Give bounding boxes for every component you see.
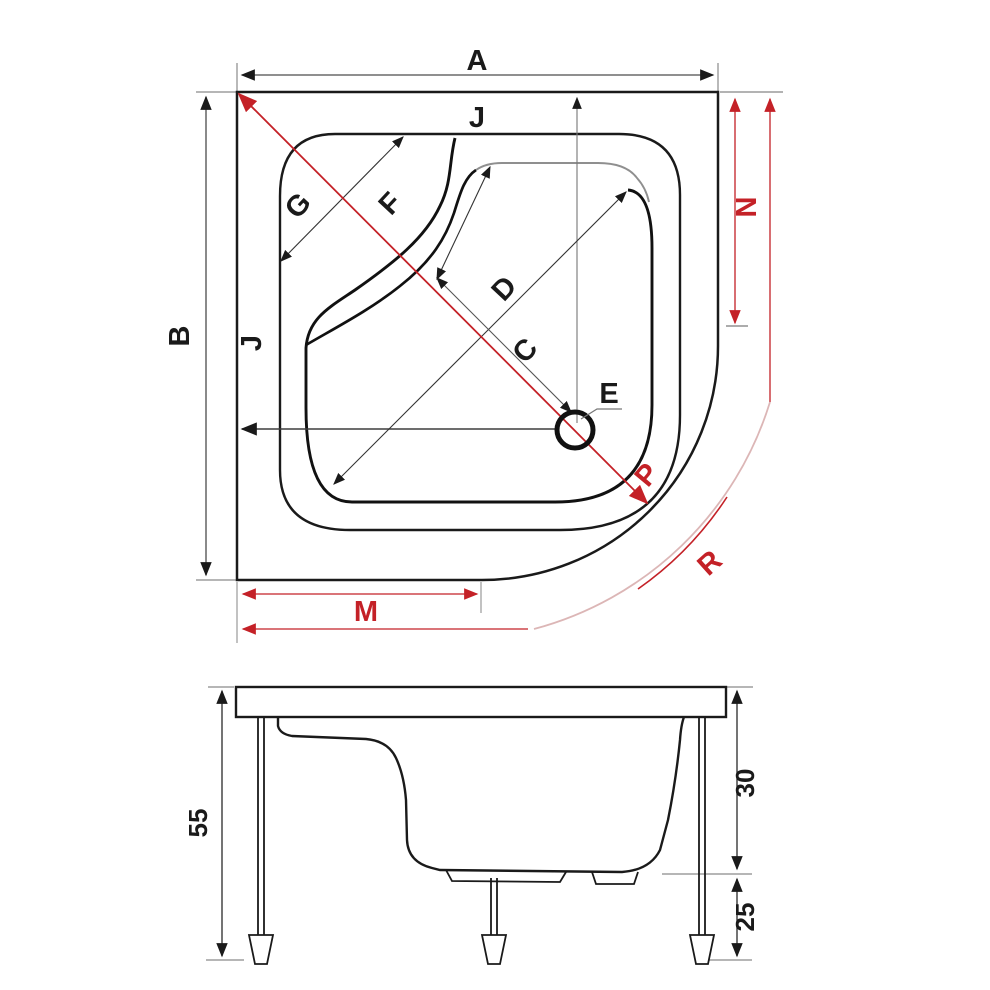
rim-slab [236, 687, 726, 717]
label-e: E [599, 378, 618, 410]
plan-view: A J B J G F D C E N P M R [164, 45, 783, 643]
label-b: B [164, 326, 196, 347]
label-n: N [731, 197, 763, 218]
diagram-canvas: A J B J G F D C E N P M R [0, 0, 990, 990]
label-a: A [467, 45, 488, 77]
label-c: C [507, 332, 545, 369]
label-j-top: J [469, 102, 485, 134]
support-bump [592, 872, 638, 884]
radius-arc-faint [534, 402, 770, 629]
label-25: 25 [730, 903, 760, 932]
label-j-left: J [236, 335, 268, 351]
label-30: 30 [730, 769, 760, 798]
label-55: 55 [183, 809, 213, 838]
tub-profile [278, 717, 684, 872]
dimension-line-d [334, 192, 626, 484]
shower-tray-technical-drawing: A J B J G F D C E N P M R [0, 0, 990, 990]
middle-foot [482, 935, 506, 964]
label-f: F [373, 186, 408, 221]
label-d: D [486, 270, 524, 307]
label-m: M [354, 596, 378, 628]
left-foot [249, 935, 273, 964]
seat-top-edge [476, 163, 649, 202]
label-r: R [691, 544, 728, 582]
inner-rim-outline [280, 134, 680, 530]
side-elevation: 55 30 25 [183, 687, 760, 964]
label-g: G [279, 187, 318, 225]
